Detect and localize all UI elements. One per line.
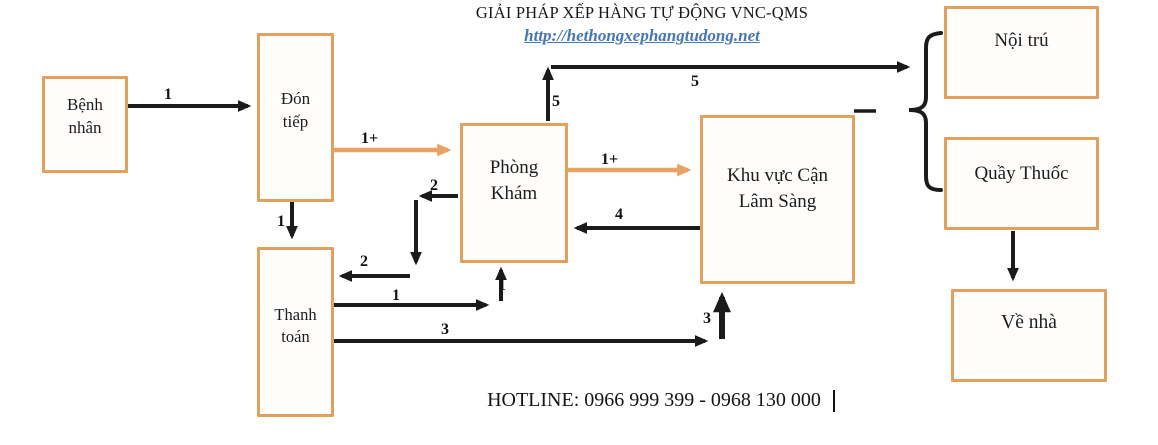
edge-label-3-horiz: 3 — [441, 322, 449, 338]
node-noi-tru-label: Nội trú — [994, 28, 1048, 54]
node-quay-thuoc[interactable]: Quầy Thuốc — [944, 137, 1099, 230]
node-benh-nhan-label: Bệnh nhân — [56, 94, 114, 140]
node-benh-nhan[interactable]: Bệnh nhân — [42, 76, 128, 173]
grouping-brace — [909, 33, 941, 190]
node-phong-kham[interactable]: Phòng Khám — [460, 123, 568, 263]
flowchart-canvas: GIẢI PHÁP XẾP HÀNG TỰ ĐỘNG VNC-QMS http:… — [0, 0, 1158, 445]
site-url: http://hethongxephangtudong.net — [402, 26, 882, 46]
edge-label-1-into-phong: 1 — [498, 278, 506, 294]
node-quay-thuoc-label: Quầy Thuốc — [974, 161, 1068, 187]
node-thanh-toan[interactable]: Thanh toán — [257, 247, 334, 417]
edge-label-1-thanh-horiz: 1 — [392, 288, 400, 304]
edge-label-5-horiz: 5 — [691, 74, 699, 90]
node-don-tiep-label: Đón tiếp — [273, 88, 319, 134]
node-thanh-toan-label: Thanh toán — [267, 304, 325, 349]
page-title[interactable]: GIẢI PHÁP XẾP HÀNG TỰ ĐỘNG VNC-QMS — [402, 3, 882, 23]
node-khu-vuc-can-lam-sang[interactable]: Khu vực Cận Lâm Sàng — [700, 115, 855, 284]
node-khu-vuc-label: Khu vực Cận Lâm Sàng — [714, 163, 842, 214]
hotline-text[interactable]: HOTLINE: 0966 999 399 - 0968 130 000 — [454, 389, 854, 412]
edge-label-1-benh-don: 1 — [164, 87, 172, 103]
node-don-tiep[interactable]: Đón tiếp — [257, 33, 334, 202]
node-ve-nha[interactable]: Về nhà — [951, 289, 1107, 382]
node-ve-nha-label: Về nhà — [1001, 310, 1057, 336]
edge-label-1plus-phong-khu: 1+ — [601, 152, 618, 168]
edge-label-2-lower: 2 — [360, 254, 368, 270]
edge-label-3-vert: 3 — [703, 311, 711, 327]
site-url-link[interactable]: http://hethongxephangtudong.net — [524, 26, 760, 45]
edge-label-5-vert: 5 — [552, 94, 560, 110]
text-caret — [833, 390, 835, 412]
edge-label-1-don-thanh: 1 — [277, 214, 285, 230]
edge-label-2-upper: 2 — [430, 178, 438, 194]
node-phong-kham-label: Phòng Khám — [478, 155, 550, 206]
node-noi-tru[interactable]: Nội trú — [944, 6, 1099, 99]
edge-label-1plus-don-phong: 1+ — [361, 131, 378, 147]
edge-label-4: 4 — [615, 207, 623, 223]
